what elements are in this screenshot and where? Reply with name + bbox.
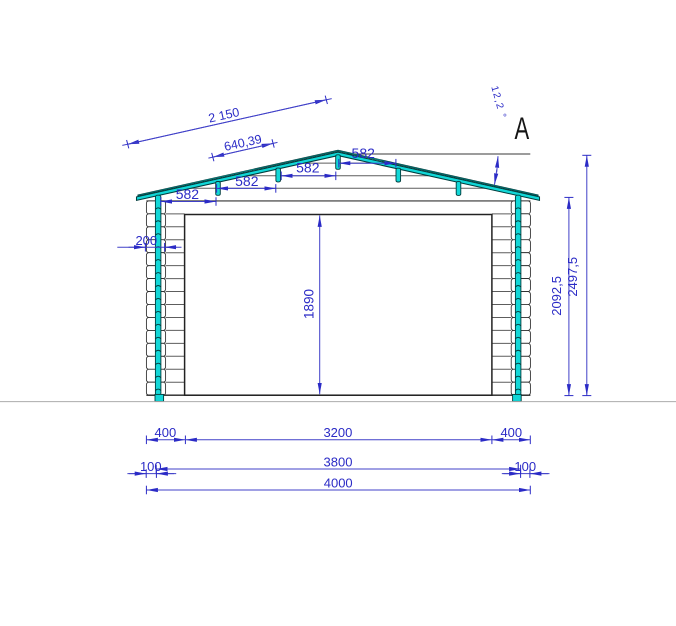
svg-text:A: A <box>515 110 530 146</box>
svg-text:4000: 4000 <box>324 475 353 490</box>
svg-text:582: 582 <box>296 159 320 175</box>
svg-text:100: 100 <box>140 459 162 474</box>
svg-text:1890: 1890 <box>301 289 316 319</box>
svg-text:2497,5: 2497,5 <box>565 257 580 297</box>
svg-text:3200: 3200 <box>323 425 352 440</box>
svg-text:2092,5: 2092,5 <box>549 276 564 316</box>
svg-text:582: 582 <box>352 145 376 161</box>
svg-text:582: 582 <box>176 186 200 202</box>
svg-text:400: 400 <box>500 425 522 440</box>
svg-text:582: 582 <box>235 173 259 189</box>
svg-text:3800: 3800 <box>324 455 353 470</box>
svg-text:100: 100 <box>514 459 536 474</box>
svg-text:400: 400 <box>155 425 177 440</box>
svg-text:200: 200 <box>135 233 157 248</box>
